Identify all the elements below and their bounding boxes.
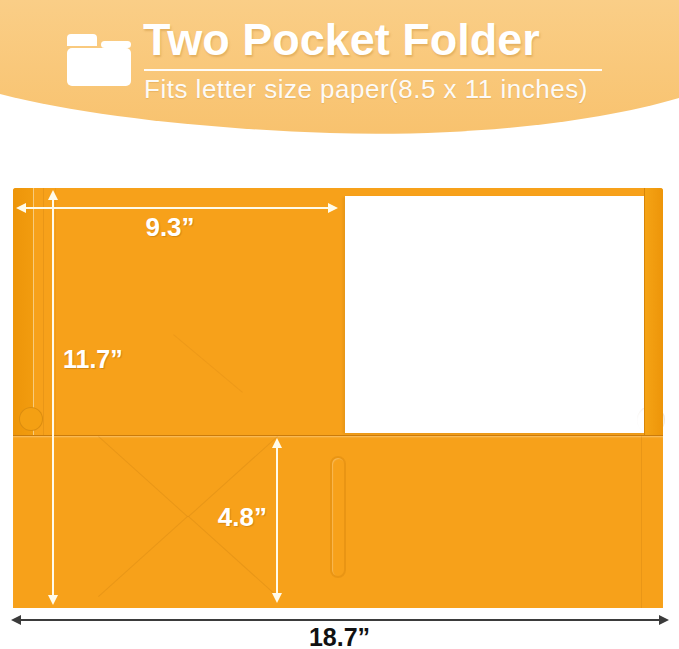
banner-content: Two Pocket Folder Fits letter size paper… xyxy=(0,0,679,110)
page-subtitle: Fits letter size paper(8.5 x 11 inches) xyxy=(144,74,644,105)
arrow-head-down xyxy=(48,595,58,605)
arrow-line xyxy=(52,198,54,597)
pocket-crease-line xyxy=(98,516,188,597)
arrow-line xyxy=(24,207,330,209)
pocket-right-crease xyxy=(641,436,642,608)
paper-sheet xyxy=(345,196,645,433)
pocket-crease-line xyxy=(98,436,188,517)
arrow-head-down xyxy=(272,593,282,603)
arrow-head-up xyxy=(272,438,282,448)
banner: Two Pocket Folder Fits letter size paper… xyxy=(0,0,679,145)
page-title: Two Pocket Folder xyxy=(143,14,623,66)
open-width-label: 9.3” xyxy=(100,212,240,243)
arrow-head-left xyxy=(16,203,26,213)
page-background: Two Pocket Folder Fits letter size paper… xyxy=(0,0,679,649)
center-spine-slot xyxy=(330,456,346,578)
height-arrow xyxy=(47,190,59,605)
bottom-pocket: Business Card xyxy=(13,435,663,608)
folder-icon xyxy=(67,32,131,86)
panel-crease-line xyxy=(173,334,243,393)
pocket-depth-arrow xyxy=(271,438,283,603)
arrow-head-up xyxy=(48,190,58,200)
total-width-label: 18.7” xyxy=(0,623,679,649)
left-thumb-notch xyxy=(19,407,43,431)
arrow-head-right xyxy=(328,203,338,213)
height-label: 11.7” xyxy=(63,345,123,374)
folder-graphic: Business Card xyxy=(13,188,663,607)
title-underline xyxy=(144,69,602,71)
arrow-line xyxy=(19,619,661,621)
pocket-depth-label: 4.8” xyxy=(180,502,267,533)
arrow-line xyxy=(276,446,278,595)
